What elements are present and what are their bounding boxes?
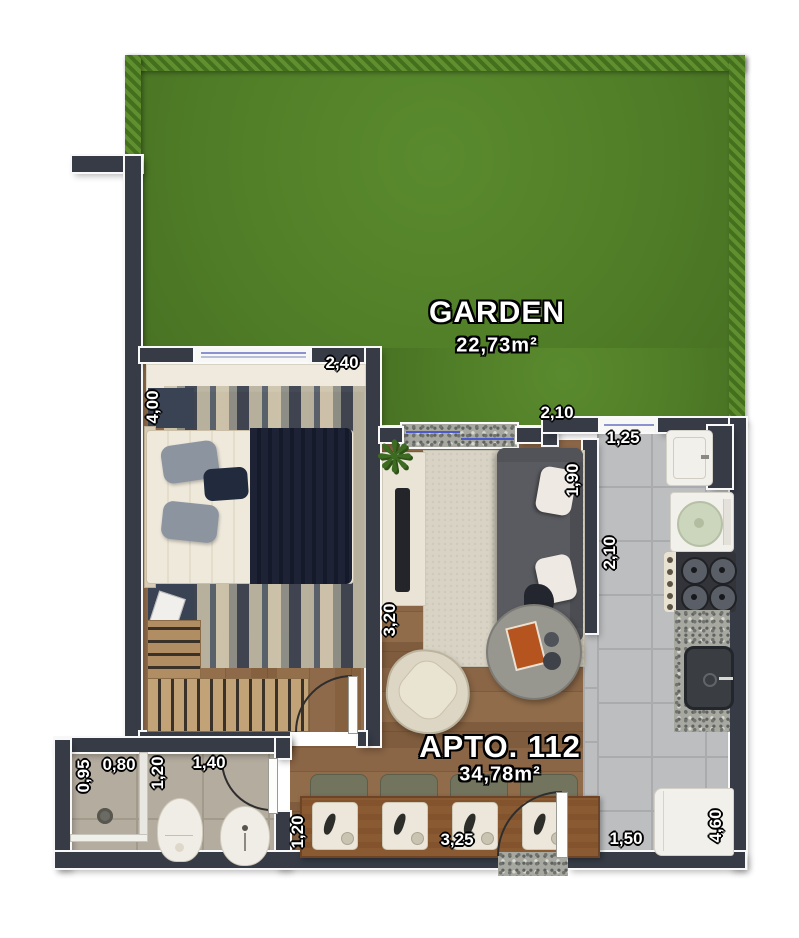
bathroom-door-leaf xyxy=(268,758,278,814)
bathroom-door-arc xyxy=(222,760,272,810)
dim-dining-depth: 1,20 xyxy=(288,815,308,848)
dim-dining-width: 3,25 xyxy=(440,830,473,850)
door-swing-arcs xyxy=(0,0,799,938)
dim-kitchen-width: 1,50 xyxy=(609,829,642,849)
bedroom-door-leaf xyxy=(348,676,358,734)
dim-terrace-gap: 2,10 xyxy=(540,403,573,423)
dim-wc-depth: 1,20 xyxy=(148,756,168,789)
apartment-label: APTO. 112 xyxy=(419,729,581,765)
dim-shower-width: 0,80 xyxy=(102,755,135,775)
floor-plan: GARDEN 22,73m² xyxy=(0,0,799,938)
garden-label: GARDEN xyxy=(429,296,565,330)
dim-living-length: 3,20 xyxy=(380,603,400,636)
dim-kitchen-top: 1,25 xyxy=(606,428,639,448)
apartment-area-label: 34,78m² xyxy=(459,764,541,787)
dim-kitchen-entry: 1,90 xyxy=(563,463,583,496)
dim-shower-depth: 0,95 xyxy=(74,759,94,792)
dim-bedroom-width: 2,40 xyxy=(325,353,358,373)
garden-area-label: 22,73m² xyxy=(456,335,538,358)
bedroom-door-arc xyxy=(296,676,352,732)
dim-bedroom-length: 4,00 xyxy=(143,390,163,423)
entry-door-leaf xyxy=(556,792,568,858)
entry-door-arc xyxy=(498,792,562,856)
dim-apto-length: 4,60 xyxy=(706,809,726,842)
dim-kitchen-length: 2,10 xyxy=(600,536,620,569)
dim-wc-width: 1,40 xyxy=(192,753,225,773)
